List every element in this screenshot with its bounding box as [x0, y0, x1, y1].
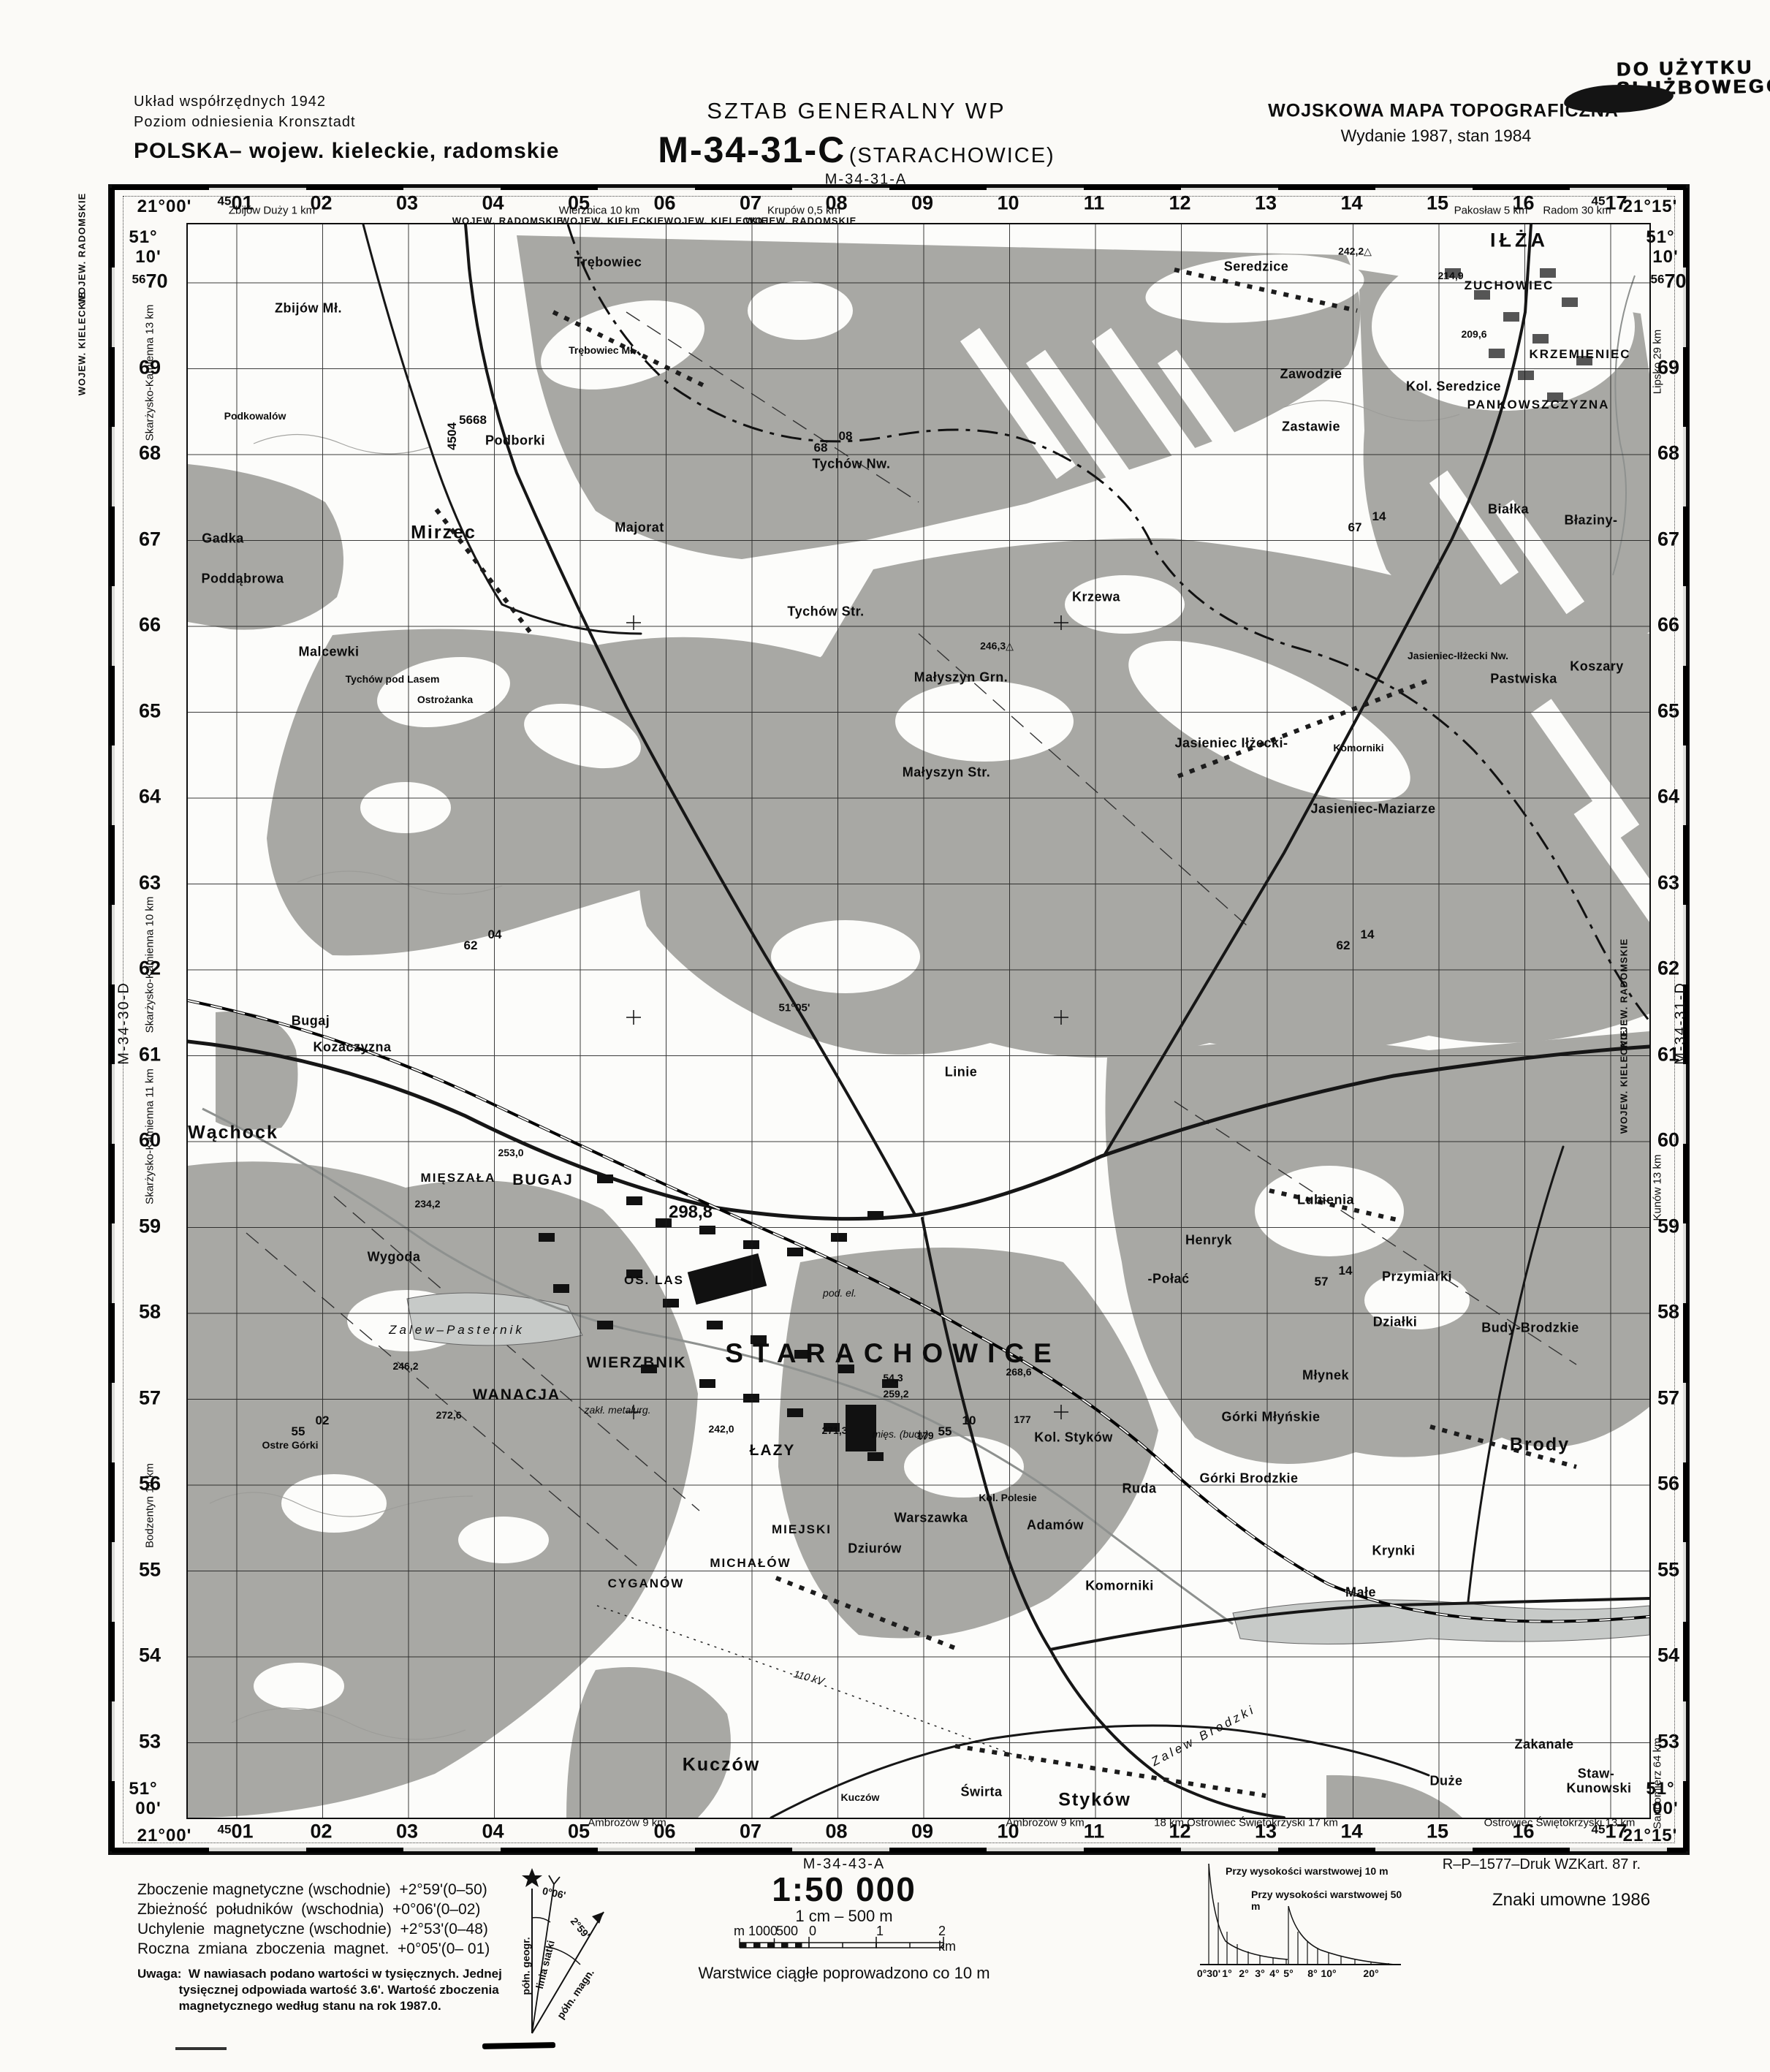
map-label: Brody [1510, 1435, 1570, 1456]
scale-bar-label: 1 [876, 1924, 884, 1939]
map-label: 234,2 [414, 1198, 440, 1210]
corner-coordinate: 21°15' [1623, 197, 1678, 217]
map-label: Majorat [615, 520, 664, 536]
grid-col-bottom: 08 [825, 1821, 847, 1843]
map-label: Jasieniec Iłżecki- [1174, 736, 1288, 751]
map-label: Wygoda [368, 1250, 421, 1265]
slope-degree-label: 3° [1255, 1967, 1264, 1979]
map-label: MIĘSZAŁA [421, 1171, 496, 1185]
contour-interval-note: Warstwice ciągłe poprowadzono co 10 m [698, 1964, 990, 1983]
grid-col-top: 09 [911, 192, 933, 215]
grid-row-left: 5670 [132, 270, 168, 293]
map-label: 271,3 [821, 1424, 847, 1436]
grid-col-top: 12 [1169, 192, 1190, 215]
map-label: Dziurów [848, 1541, 902, 1557]
map-label: 02 [316, 1413, 330, 1428]
map-label: Kuczów [683, 1755, 760, 1776]
map-label: mięs. (budy) [872, 1428, 928, 1440]
map-label: Zalew–Pasternik [389, 1323, 525, 1337]
map-label: Tychów Nw. [812, 457, 890, 472]
grid-row-right: 60 [1657, 1129, 1679, 1152]
minute-band-left [110, 188, 115, 1851]
grid-row-right: 55 [1657, 1558, 1679, 1581]
coord-system-note: Układ współrzędnych 1942 [134, 94, 326, 110]
edge-destination-left: Skarżysko-Kamienna 10 km [144, 897, 156, 1033]
slope-degree-label: 2° [1239, 1967, 1248, 1979]
grid-row-right: 57 [1657, 1386, 1679, 1409]
map-label: STARACHOWICE [725, 1338, 1061, 1369]
adjacent-sheet-code: M-34-31-D [1673, 982, 1690, 1065]
edge-destination-top: Zbijów Duży 1 km [229, 205, 315, 217]
grid-row-left: 65 [139, 699, 161, 722]
declination-line: Zboczenie magnetyczne (wschodnie) +2°59'… [137, 1880, 490, 1900]
map-label: Jasieniec-Maziarze [1310, 802, 1435, 817]
map-label: Budy-Brodzkie [1481, 1321, 1579, 1336]
map-label: Zakanale [1514, 1737, 1573, 1753]
map-label: CYGANÓW [608, 1576, 685, 1591]
map-label: 259,2 [883, 1388, 908, 1400]
slope-degree-label: 20° [1363, 1967, 1378, 1979]
map-label: Ruda [1123, 1481, 1157, 1497]
map-label: Górki Młyńskie [1221, 1410, 1320, 1425]
corner-coordinate: 51° [129, 227, 157, 248]
grid-row-left: 59 [139, 1215, 161, 1237]
map-label: Tychów Str. [787, 604, 864, 620]
map-label: Kol. Seredzice [1406, 379, 1501, 395]
grid-row-left: 54 [139, 1644, 161, 1667]
map-label: 242,2△ [1338, 246, 1372, 258]
map-label: 62 [464, 938, 478, 953]
magnetic-north-arrow-icon [592, 1912, 604, 1924]
map-label: Koszary [1570, 659, 1624, 675]
grid-row-left: 64 [139, 786, 161, 808]
slope-degree-label: 4° [1269, 1967, 1279, 1979]
map-label: Małyszyn Grn. [914, 670, 1009, 686]
map-label: Henryk [1185, 1233, 1232, 1248]
scale-bar-art [732, 1937, 959, 1966]
corner-coordinate: 21°00' [137, 1826, 192, 1846]
sheet-title: M-34-31-C (STARACHOWICE) [658, 129, 1055, 171]
grid-row-right: 65 [1657, 699, 1679, 722]
map-label: IŁŻA [1490, 229, 1549, 252]
map-label: KRZEMIENIEC [1529, 347, 1630, 362]
voivodeship-label-right: WOJEW. KIELECKIE [1619, 1030, 1630, 1134]
print-registration-mark [482, 2042, 555, 2049]
grid-row-right: 66 [1657, 614, 1679, 637]
grid-col-bottom: 05 [568, 1821, 590, 1843]
declination-line: Zbieżność południków (wschodnia) +0°06'(… [137, 1900, 490, 1919]
map-label: 55 [938, 1424, 952, 1439]
map-label: Białka [1488, 502, 1529, 517]
map-label: Małe [1345, 1585, 1376, 1601]
map-label: Kozaczyzna [313, 1040, 391, 1055]
grid-col-bottom: 07 [740, 1821, 761, 1843]
adjacent-sheet-code: M-34-31-A [825, 172, 907, 189]
map-label: Zawodzie [1280, 367, 1342, 382]
map-label: 14 [1361, 927, 1375, 942]
grid-row-left: 53 [139, 1730, 161, 1753]
corner-coordinate: 10' [135, 247, 161, 267]
map-label: WANACJA [473, 1386, 561, 1404]
slope-degree-label: 0°30' [1197, 1967, 1220, 1979]
map-label: 62 [1337, 938, 1351, 953]
map-label: Jasieniec-Iłżecki Nw. [1408, 650, 1508, 661]
map-label: 14 [1372, 509, 1386, 524]
grid-prefix: 45 [218, 1823, 232, 1837]
region-title: POLSKA– wojew. kieleckie, radomskie [134, 139, 559, 164]
corner-coordinate: 21°00' [137, 197, 192, 217]
map-label: OS. LAS [624, 1273, 684, 1288]
declination-note-line: tysięcznej odpowiada wartość 3.6'. Warto… [137, 1982, 502, 1998]
map-label: 246,2 [392, 1360, 418, 1372]
map-label: MIEJSKI [772, 1522, 832, 1537]
corner-coordinate: 21°15' [1623, 1826, 1678, 1846]
map-label: Kol. Polesie [979, 1492, 1036, 1503]
edge-destination-top: Radom 30 km [1543, 205, 1611, 217]
adjacent-sheet-code: M-34-30-D [116, 982, 133, 1065]
slope-degree-label: 8° [1307, 1967, 1317, 1979]
map-label: 68 [814, 441, 828, 455]
map-sheet-page: Układ współrzędnych 1942 Poziom odniesie… [0, 0, 1770, 2072]
grid-row-right: 58 [1657, 1301, 1679, 1324]
map-label: Staw- [1578, 1766, 1615, 1782]
corner-coordinate: 51° [1646, 1779, 1674, 1799]
grid-row-left: 58 [139, 1301, 161, 1324]
map-label: Działki [1373, 1315, 1418, 1330]
grid-col-top: 11 [1084, 192, 1105, 215]
slope-label-10m: Przy wysokości warstwowej 10 m [1226, 1865, 1389, 1877]
print-registration-mark-2 [175, 2047, 227, 2050]
declination-note: Uwaga: W nawiasach podano wartości w tys… [137, 1966, 502, 2014]
edge-destination-left: Skarżysko-Kamienna 13 km [144, 305, 156, 441]
declination-diagram: 0°06' 2°59' półn. geogr. linia siatki pó… [475, 1865, 636, 2048]
issuing-org: SZTAB GENERALNY WP [707, 98, 1006, 124]
grid-prefix: 56 [132, 273, 146, 286]
corner-coordinate: 00' [135, 1799, 161, 1819]
declination-block: Zboczenie magnetyczne (wschodnie) +2°59'… [137, 1880, 490, 1959]
corner-coordinate: 10' [1652, 247, 1678, 267]
map-label: 246,3△ [980, 640, 1014, 653]
grid-col-bottom: 14 [1340, 1821, 1362, 1843]
map-body: Zbijów Mł.TrębowiecTrębowiec Mł.Seredzic… [186, 223, 1651, 1819]
grid-col-top: 07 [740, 192, 761, 215]
map-label: Seredzice [1224, 259, 1289, 275]
slope-degree-label: 5° [1283, 1967, 1293, 1979]
corner-coordinate: 00' [1652, 1799, 1678, 1819]
grid-col-bottom: 11 [1084, 1821, 1105, 1843]
map-label: -Połać [1147, 1272, 1189, 1287]
grid-row-left: 66 [139, 614, 161, 637]
declination-line: Roczna zmiana zboczenia magnet. +0°05'(0… [137, 1939, 490, 1959]
map-label: 54,3 [883, 1372, 903, 1384]
map-label: Trębowiec [574, 255, 642, 270]
grid-row-left: 68 [139, 442, 161, 465]
map-label: Poddąbrowa [201, 572, 284, 587]
map-label: 242,0 [708, 1423, 734, 1435]
edge-destination-left: Bodzentyn 14 km [144, 1463, 156, 1548]
map-label: ŁAZY [750, 1442, 796, 1460]
map-label: MICHAŁÓW [710, 1556, 791, 1571]
map-label: Krynki [1372, 1544, 1415, 1559]
map-label: 08 [839, 429, 853, 444]
grid-col-bottom: 09 [911, 1821, 933, 1843]
map-label: PANKOWSZCZYZNA [1467, 398, 1610, 412]
map-label: Podborki [485, 433, 545, 449]
map-label: 57 [1315, 1275, 1329, 1289]
grid-row-left: 61 [139, 1043, 161, 1066]
declination-note-line: magnetycznego według stanu na rok 1987.0… [137, 1998, 502, 2014]
map-label: Ostrożanka [417, 694, 473, 705]
adjacent-sheet-code: M-34-43-A [803, 1856, 885, 1873]
grid-col-top: 14 [1340, 192, 1362, 215]
map-label: 04 [488, 927, 502, 942]
grid-row-right: 5670 [1651, 270, 1687, 293]
grid-col-top: 04 [482, 192, 504, 215]
scale-bar-label: 0 [809, 1924, 816, 1939]
map-label: Ostre Górki [262, 1439, 318, 1451]
map-label: 4504 [445, 422, 460, 450]
grid-row-left: 63 [139, 871, 161, 894]
map-label: 5668 [459, 413, 487, 428]
grid-row-right: 54 [1657, 1644, 1679, 1667]
legend-edition-note: Znaki umowne 1986 [1492, 1890, 1650, 1910]
grid-row-left: 67 [139, 528, 161, 550]
corner-coordinate: 51° [1646, 227, 1674, 248]
edge-destination-bottom: Ostrowiec Świętokrzyski 13 km [1484, 1817, 1636, 1829]
grid-col-top: 15 [1427, 192, 1448, 215]
map-label: 214,9 [1437, 270, 1463, 281]
slope-label-50m: Przy wysokości warstwowej 50 m [1251, 1889, 1412, 1912]
map-label: Błaziny- [1564, 513, 1617, 528]
grid-col-bottom: 03 [396, 1821, 418, 1843]
map-artwork [188, 224, 1649, 1818]
grid-row-right: 67 [1657, 528, 1679, 550]
map-label: Linie [945, 1065, 978, 1080]
declination-line: Uchylenie magnetyczne (wschodnie) +2°53'… [137, 1919, 490, 1939]
minute-band-bottom [112, 1848, 1686, 1853]
edge-destination-bottom: Ambrożów 9 km [588, 1817, 666, 1829]
map-label: Bugaj [292, 1014, 330, 1029]
map-label: WIERZBNIK [587, 1354, 687, 1372]
grid-col-bottom: 04 [482, 1821, 504, 1843]
map-label: pod. el. [823, 1287, 856, 1299]
scale-ratio: 1:50 000 [772, 1870, 916, 1909]
voivodeship-label-top: WOJEW. RADOMSKIE [745, 216, 857, 227]
grid-prefix: 56 [1651, 273, 1665, 286]
map-label: Zastawie [1282, 420, 1340, 435]
grid-row-right: 62 [1657, 957, 1679, 980]
voivodeship-label-top: WOJEW. KIELECKIE [561, 216, 664, 227]
map-label: Trębowiec Mł. [569, 344, 636, 356]
map-label: Kuczów [841, 1791, 880, 1803]
grid-col-top: 10 [997, 192, 1019, 215]
map-label: Świrta [960, 1785, 1002, 1800]
map-label: Adamów [1027, 1518, 1084, 1533]
grid-row-right: 64 [1657, 786, 1679, 808]
map-label: Komorniki [1085, 1579, 1154, 1594]
voivodeship-label-top: WOJEW. RADOMSKIE [452, 216, 564, 227]
map-label: 51°05' [779, 1002, 810, 1014]
map-label: 209,6 [1461, 328, 1486, 340]
grid-row-right: 63 [1657, 871, 1679, 894]
redaction-stamp-blob [1563, 83, 1674, 114]
map-label: Przymiarki [1382, 1270, 1452, 1285]
geographic-north-label: półn. geogr. [520, 1937, 532, 1995]
map-label: Duże [1429, 1774, 1462, 1789]
grid-row-left: 57 [139, 1386, 161, 1409]
map-label: 298,8 [669, 1202, 713, 1223]
map-label: Pastwiska [1490, 672, 1557, 687]
map-label: zakł. metalurg. [584, 1404, 650, 1416]
scale-bar-label: 500 [776, 1924, 798, 1939]
grid-col-top: 06 [653, 192, 675, 215]
edge-destination-right: Kunów 13 km [1652, 1155, 1664, 1221]
slope-degree-label: 1° [1222, 1967, 1231, 1979]
scale-bar: m 1000500012 km [732, 1924, 959, 1953]
map-label: Warszawka [895, 1511, 968, 1526]
sheet-code: M-34-31-C [658, 129, 846, 170]
scale-bar-label: 2 km [938, 1924, 959, 1954]
grid-col-bottom: 4501 [218, 1821, 254, 1843]
edge-destination-bottom: Ambrożów 9 km [1006, 1817, 1085, 1829]
map-label: Młynek [1302, 1368, 1349, 1384]
corner-coordinate: 51° [129, 1779, 157, 1799]
sheet-name: (STARACHOWICE) [849, 144, 1055, 167]
declination-note-line: Uwaga: W nawiasach podano wartości w tys… [137, 1966, 502, 1982]
map-label: Kunowski [1566, 1781, 1631, 1796]
map-label: 253,0 [498, 1147, 523, 1158]
grid-col-bottom: 02 [310, 1821, 332, 1843]
grid-col-bottom: 15 [1427, 1821, 1448, 1843]
map-label: 177 [1014, 1413, 1030, 1425]
map-label: 14 [1339, 1264, 1353, 1278]
grid-row-right: 68 [1657, 442, 1679, 465]
voivodeship-label-left: WOJEW. KIELECKIE [77, 292, 88, 395]
map-label: ZUCHOWIEC [1465, 278, 1554, 293]
map-label: Wąchock [188, 1123, 278, 1144]
edge-destination-left: Skarżysko-Kamienna 11 km [144, 1069, 156, 1204]
map-label: 55 [292, 1424, 305, 1439]
map-label: Tychów pod Lasem [346, 673, 440, 685]
forest-layer [188, 235, 1649, 1818]
grid-col-top: 13 [1255, 192, 1277, 215]
map-label: Podkowalów [224, 410, 286, 422]
map-label: 67 [1348, 520, 1362, 535]
edition-note: Wydanie 1987, stan 1984 [1341, 126, 1532, 146]
map-label: Krzewa [1072, 590, 1120, 605]
map-label: Kol. Styków [1034, 1430, 1113, 1446]
map-label: 10 [962, 1413, 976, 1428]
edge-destination-bottom: 18 km Ostrowiec Świętokrzyski 17 km [1154, 1817, 1338, 1829]
map-label: BUGAJ [512, 1172, 574, 1189]
map-label: Gadka [202, 531, 244, 547]
datum-note: Poziom odniesienia Kronsztadt [134, 114, 356, 131]
edge-destination-top: Pakosław 5 km [1454, 205, 1528, 217]
north-star-icon [522, 1868, 542, 1887]
grid-col-top: 03 [396, 192, 418, 215]
slope-diagram: Przy wysokości warstwowej 10 m Przy wyso… [1185, 1862, 1412, 1986]
map-label: Małyszyn Str. [903, 765, 991, 781]
slope-degree-label: 10° [1321, 1967, 1336, 1979]
map-label: Mirzec [411, 523, 476, 544]
grid-row-right: 56 [1657, 1473, 1679, 1495]
map-label: 268,6 [1006, 1366, 1031, 1378]
map-label: 272,6 [436, 1409, 461, 1421]
edge-destination-right: Lipsko 29 km [1652, 330, 1664, 394]
print-code: R–P–1577–Druk WZKart. 87 r. [1443, 1856, 1641, 1873]
map-label: Malcewki [298, 645, 359, 660]
grid-row-left: 55 [139, 1558, 161, 1581]
map-label: Komorniki [1333, 742, 1383, 754]
map-label: Zbijów Mł. [275, 301, 342, 316]
scale-bar-label: m 1000 [734, 1924, 778, 1939]
map-label: Górki Brodzkie [1199, 1471, 1298, 1487]
map-label: Lubienia [1297, 1193, 1354, 1208]
voivodeship-label-left: WOJEW. RADOMSKIE [77, 193, 88, 305]
map-label: Styków [1058, 1790, 1131, 1811]
